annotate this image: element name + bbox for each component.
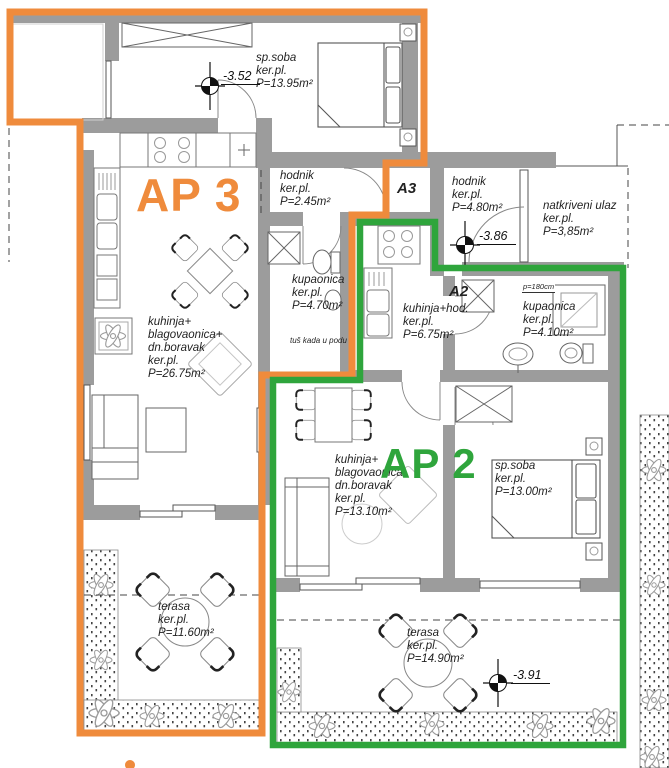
annotation-p180: p=180cm [522, 283, 555, 293]
floorplan-drawing [0, 0, 669, 768]
elevation-value-entry: -3.86 [477, 229, 516, 245]
elevation-marker-entry [450, 221, 480, 269]
washing-machine-icon [268, 232, 300, 264]
bed-icon [318, 43, 402, 127]
dining-set-icon-ap2 [296, 388, 371, 442]
room-label-terasa-ap3: terasaker.pl.P=11.60m² [158, 601, 214, 640]
elevation-value-bedroom: -3.52 [221, 69, 260, 85]
room-label-kuhinja-ap3: kuhinja+blagovaonica+dn.boravakker.pl.P=… [148, 316, 223, 382]
sink-counter-icon-a2 [364, 268, 392, 338]
apartment-label-ap2: AP 2 [380, 440, 477, 488]
coffee-table-icon [146, 408, 186, 452]
wardrobe-icon-ap2 [456, 386, 512, 422]
unit-marker-a3: A3 [397, 180, 416, 197]
elevation-value-terrace: -3.91 [511, 668, 550, 684]
room-label-sp-soba-ap2: sp.sobaker.pl.P=13.00m² [495, 460, 552, 499]
annotation-tus-kada: tuš kada u podu [290, 336, 347, 345]
sofa-icon-ap2 [285, 478, 329, 576]
stove-icon-a2 [378, 226, 420, 264]
toilet-icon [313, 250, 340, 274]
floorplan-canvas: sp.sobaker.pl.P=13.95m² hodnikker.pl.P=2… [0, 0, 669, 768]
plant-icon [95, 318, 132, 354]
room-label-kuhinja-hod-a2: kuhinja+hod.ker.pl.P=6.75m² [403, 303, 469, 342]
unit-marker-a2: A2 [449, 283, 468, 300]
room-label-natkriveni-ulaz: natkriveni ulazker.pl.P=3,85m² [543, 200, 617, 239]
elevation-marker-terrace [483, 659, 513, 707]
stove-icon [120, 133, 256, 167]
room-label-kupaonica-ap3: kupaonicaker.pl.P=4.70m² [292, 274, 344, 313]
dining-set-icon [171, 234, 250, 310]
toilet-icon-a2 [560, 343, 593, 363]
sofa-icon [92, 395, 138, 479]
room-label-terasa-ap2: terasaker.pl.P=14.90m² [407, 627, 464, 666]
room-label-hodnik-ap3: hodnikker.pl.P=2.45m² [280, 170, 330, 209]
room-label-hodnik-a2: hodnikker.pl.P=4.80m² [452, 176, 502, 215]
cropped-text-dot [125, 760, 135, 768]
room-label-kupaonica-a2: kupaonicaker.pl.P=4.10m² [523, 301, 575, 340]
room-label-sp-soba-ap3: sp.sobaker.pl.P=13.95m² [256, 52, 313, 91]
wardrobe-icon [122, 23, 252, 47]
washbasin-icon-a2 [503, 343, 533, 373]
apartment-label-ap3: AP 3 [136, 168, 241, 222]
sink-counter-icon [94, 168, 120, 308]
